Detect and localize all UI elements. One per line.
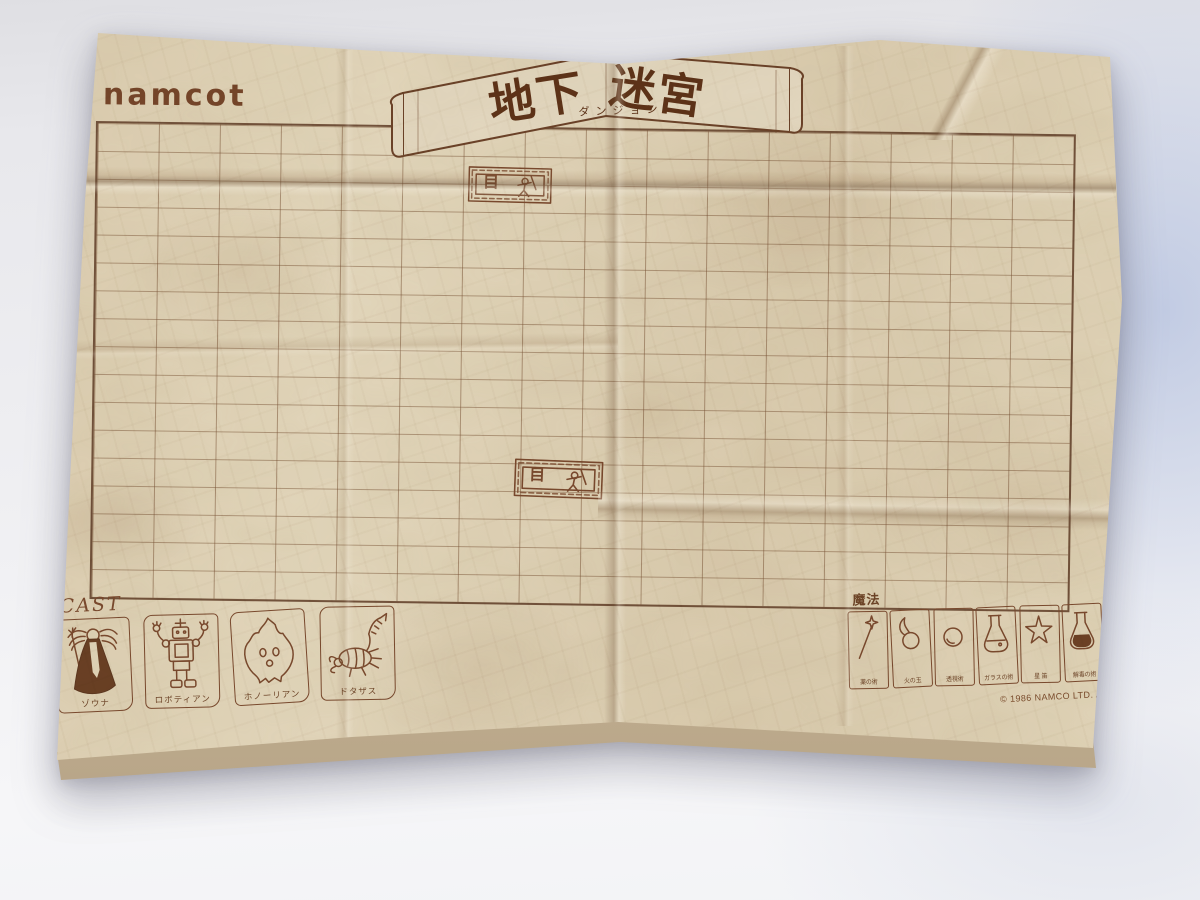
magic-label: 透視術 [946, 673, 964, 683]
magic-row: 薬の術 火の玉 透視術 [847, 600, 1180, 689]
cast-row: ゾウナ [54, 604, 404, 714]
sphere-icon [937, 611, 968, 660]
magic-label: いなずまの術 [1109, 667, 1144, 678]
cast-name: ドタザス [322, 685, 395, 698]
entrance-marker-bottom: 目 [513, 458, 606, 502]
photo-of-dungeon-map-sheet: namcot 地下 迷宮 ダンジョン [0, 0, 1200, 900]
magic-card-star: 星 笛 [1019, 605, 1061, 684]
magic-card-glass: ガラスの術 [975, 606, 1019, 686]
map-grid [92, 123, 1074, 610]
robot-figure-icon [148, 617, 214, 697]
magic-label: 星 笛 [1034, 670, 1048, 680]
hero-sprite-icon [518, 176, 537, 196]
wand-icon [852, 614, 883, 663]
door-glyph: 目 [529, 467, 546, 484]
magic-card-wand: 薬の術 [847, 611, 889, 690]
cast-card-dotazas: ドタザス [319, 606, 396, 701]
magic-card-lightning: いなずまの術 [1105, 602, 1147, 681]
paper-shadow-wrapper: namcot 地下 迷宮 ダンジョン [0, 0, 1200, 900]
brick-room-icon [513, 458, 603, 500]
cast-card-honorian: ホノーリアン [229, 608, 310, 707]
title-banner: 地下 迷宮 ダンジョン [388, 44, 824, 166]
magic-card-fireball: 火の玉 [889, 609, 933, 689]
cast-name: ゾウナ [59, 695, 132, 710]
entrance-marker-top: 目 [468, 166, 553, 204]
corner-fold-crease [888, 28, 1044, 140]
flask-icon [979, 609, 1011, 658]
flame-creature-icon [235, 612, 304, 694]
hero-sprite-icon [567, 470, 587, 492]
fireball-icon [893, 612, 925, 661]
magic-card-antidote: 解毒の術 [1061, 603, 1105, 683]
cast-section: CAST [53, 580, 405, 726]
brick-room-icon [468, 166, 553, 204]
magic-label: 解毒の術 [1073, 668, 1097, 679]
cast-card-zouna: ゾウナ [54, 616, 133, 713]
namcot-logo: namcot [103, 77, 247, 114]
lightning-icon [1109, 605, 1140, 654]
magic-card-clairvoyance: 透視術 [933, 608, 975, 687]
magic-section: 魔法 薬の術 火の玉 [846, 578, 1180, 701]
magic-label: ガラスの術 [984, 671, 1014, 682]
star-icon [1023, 608, 1054, 657]
filled-flask-icon [1065, 606, 1097, 655]
door-glyph: 目 [483, 174, 499, 190]
cast-card-robotian: ロボティアン [143, 613, 220, 709]
cast-name: ロボティアン [146, 692, 219, 706]
magic-label: 火の玉 [904, 674, 922, 685]
wizard-figure-icon [59, 621, 126, 702]
map-border [89, 121, 1075, 612]
scorpion-figure-icon [324, 610, 389, 689]
magic-label: 薬の術 [860, 676, 878, 686]
